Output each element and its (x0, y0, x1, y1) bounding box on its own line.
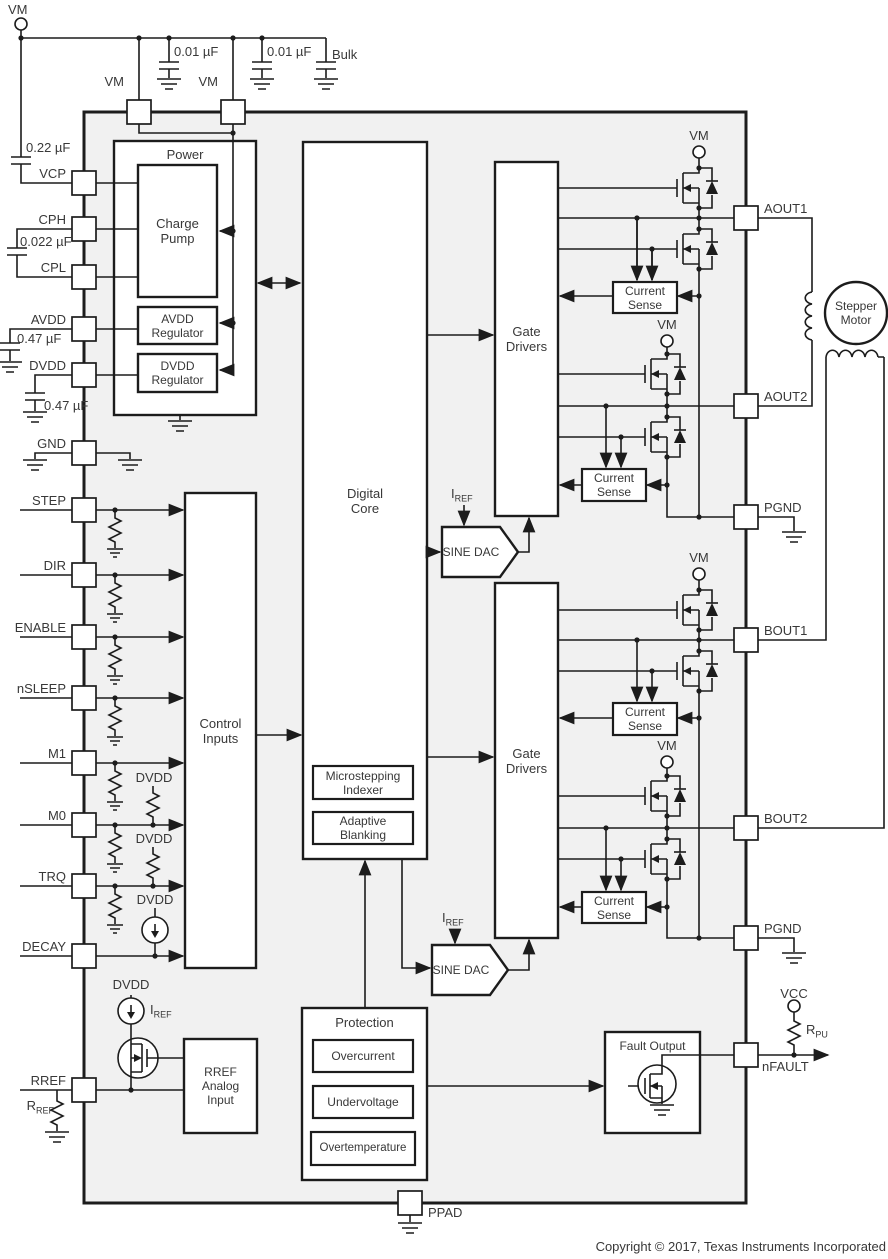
pin-bout1-label: BOUT1 (764, 623, 854, 638)
pin-dir-label: DIR (2, 558, 66, 573)
pin-aout1 (734, 206, 758, 230)
cap2-label: 0.01 µF (267, 44, 327, 59)
fault-output-label: Fault Output (605, 1039, 700, 1053)
pin-m1 (72, 751, 96, 775)
pin-aout1-label: AOUT1 (764, 201, 854, 216)
current-sense-b2-label: Current Sense (582, 892, 646, 923)
sine-dac-b-iref-label: IREF (442, 910, 478, 931)
rref-iref-label: IREF (150, 1002, 190, 1023)
cap1-label: 0.01 µF (174, 44, 234, 59)
pin-rref-label: RREF (2, 1073, 66, 1088)
pin-pgnd1 (734, 505, 758, 529)
pin-ppad-label: PPAD (428, 1205, 476, 1220)
pin-dvdd-label: DVDD (2, 358, 66, 373)
pin-rref (72, 1078, 96, 1102)
pin-gnd-label: GND (2, 436, 66, 451)
undervoltage-label: Undervoltage (313, 1086, 413, 1118)
trq-pullup-label: DVDD (133, 831, 175, 846)
functional-block-diagram: .w { stroke:#1c1c1c; stroke-width:1.6; f… (0, 0, 888, 1259)
pin-nfault (734, 1043, 758, 1067)
pin-vcp (72, 171, 96, 195)
copyright-text: Copyright © 2017, Texas Instruments Inco… (560, 1239, 886, 1254)
gate-drivers-a-label: Gate Drivers (495, 162, 558, 516)
rref-resistor-label: RREF (20, 1098, 54, 1119)
pin-enable-label: ENABLE (2, 620, 66, 635)
decay-pullup-label: DVDD (134, 892, 176, 907)
pin-m1-label: M1 (2, 746, 66, 761)
digital-core-label: Digital Core (303, 142, 427, 859)
power-label: Power (114, 147, 256, 162)
sine-dac-b-label: SINE DAC (430, 958, 492, 982)
gate-drivers-b-label: Gate Drivers (495, 583, 558, 938)
pin-decay (72, 944, 96, 968)
pin-trq (72, 874, 96, 898)
stepper-motor-label: Stepper Motor (821, 291, 888, 335)
m0-pullup-label: DVDD (133, 770, 175, 785)
charge-pump-label: Charge Pump (138, 165, 217, 297)
pin-vm2 (221, 100, 245, 124)
pin-nfault-label: nFAULT (762, 1059, 832, 1074)
pin-m0 (72, 813, 96, 837)
control-inputs-label: Control Inputs (185, 493, 256, 968)
bulk-cap-label: Bulk (332, 47, 372, 62)
rref-analog-input-label: RREF Analog Input (184, 1039, 257, 1133)
pin-dvdd (72, 363, 96, 387)
dvdd-regulator-label: DVDD Regulator (138, 354, 217, 392)
pin-ppad (398, 1191, 422, 1215)
pin-bout2 (734, 816, 758, 840)
rpu-label: RPU (806, 1022, 840, 1043)
overcurrent-label: Overcurrent (313, 1040, 413, 1072)
pin-gnd (72, 441, 96, 465)
pin-avdd (72, 317, 96, 341)
pin-nsleep-label: nSLEEP (2, 681, 66, 696)
current-sense-a1-label: Current Sense (613, 282, 677, 313)
adaptive-blanking-label: Adaptive Blanking (313, 812, 413, 844)
vcc-label: VCC (778, 986, 810, 1001)
cph-cap-label: 0.022 µF (20, 234, 78, 249)
current-sense-a2-label: Current Sense (582, 469, 646, 501)
pin-vcp-label: VCP (2, 166, 66, 181)
vm-a2-label: VM (652, 317, 682, 332)
pin-trq-label: TRQ (2, 869, 66, 884)
pin-step (72, 498, 96, 522)
avdd-regulator-label: AVDD Regulator (138, 307, 217, 344)
vcp-cap-label: 0.22 µF (26, 140, 80, 155)
pin-pgnd1-label: PGND (764, 500, 854, 515)
protection-label: Protection (302, 1015, 427, 1030)
vm-b2-label: VM (652, 738, 682, 753)
avdd-cap-label: 0.47 µF (17, 331, 67, 346)
microstepping-indexer-label: Microstepping Indexer (313, 766, 413, 799)
overtemperature-label: Overtemperature (311, 1132, 415, 1165)
pin-bout1 (734, 628, 758, 652)
vm-b1-label: VM (684, 550, 714, 565)
pin-aout2 (734, 394, 758, 418)
sine-dac-a-label: SINE DAC (440, 540, 502, 564)
vm-a1-label: VM (684, 128, 714, 143)
pin-cpl-label: CPL (2, 260, 66, 275)
rref-dvdd-label: DVDD (110, 977, 152, 992)
pin-decay-label: DECAY (2, 939, 66, 954)
pin-bout2-label: BOUT2 (764, 811, 854, 826)
pin-pgnd2 (734, 926, 758, 950)
sine-dac-a-iref-label: IREF (451, 486, 487, 507)
vm-terminal-label: VM (8, 2, 36, 17)
pin-cph-label: CPH (2, 212, 66, 227)
dvdd-cap-label: 0.47 µF (44, 398, 94, 413)
pin-vm2-label: VM (190, 74, 218, 89)
pin-avdd-label: AVDD (2, 312, 66, 327)
pin-vm1 (127, 100, 151, 124)
pin-step-label: STEP (2, 493, 66, 508)
pin-cpl (72, 265, 96, 289)
pin-nsleep (72, 686, 96, 710)
pin-m0-label: M0 (2, 808, 66, 823)
pin-pgnd2-label: PGND (764, 921, 854, 936)
diagram-canvas: .w { stroke:#1c1c1c; stroke-width:1.6; f… (0, 0, 888, 1259)
pin-aout2-label: AOUT2 (764, 389, 854, 404)
pin-vm1-label: VM (96, 74, 124, 89)
current-sense-b1-label: Current Sense (613, 703, 677, 735)
pin-dir (72, 563, 96, 587)
pin-enable (72, 625, 96, 649)
